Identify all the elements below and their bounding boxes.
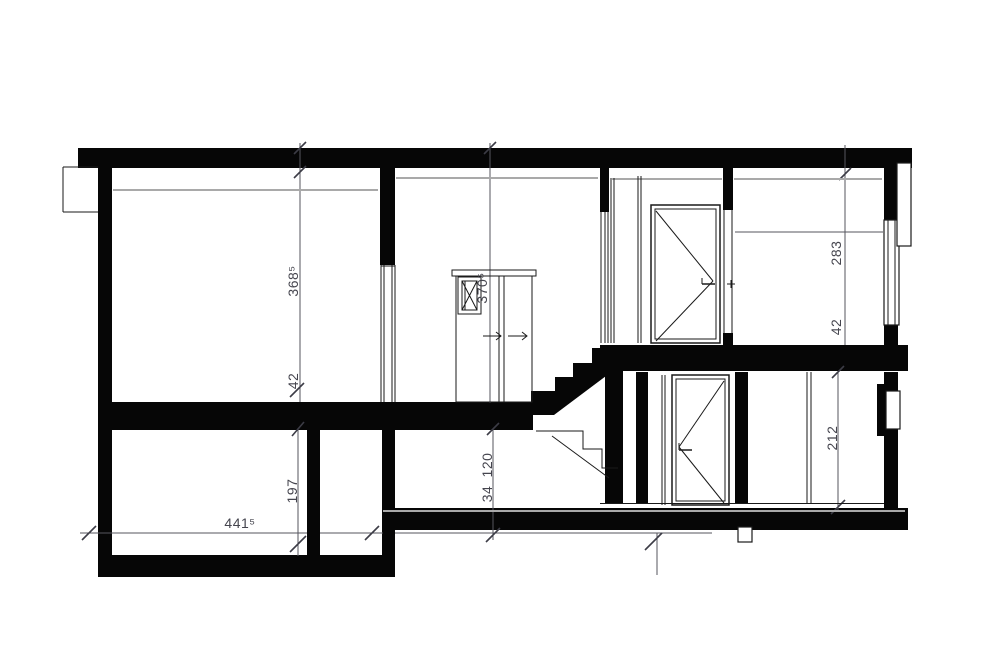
- floorplan-sheet: 368⁵ 42 370⁵ 283 42 212 120 34 197 441⁵: [0, 0, 1005, 669]
- dim-crawl-slab: 34: [479, 486, 495, 503]
- dim-upper-right-slab: 42: [828, 319, 844, 336]
- dim-lower-right-room-height: 212: [824, 426, 840, 451]
- dim-upper-left-room-height: 368⁵: [285, 265, 301, 296]
- lower-right-door: [662, 375, 729, 505]
- dim-basement-room-height: 197: [284, 479, 300, 504]
- slab-detail-marker: [738, 527, 752, 542]
- dim-upper-left-slab: 42: [285, 373, 301, 390]
- exterior-ground-notch: [63, 167, 98, 212]
- upper-right-door: [651, 205, 720, 343]
- exterior-shutter-box: [897, 163, 911, 246]
- slide-arrow-right-icon: [508, 332, 527, 340]
- dim-basement-width: 441⁵: [224, 515, 255, 531]
- lower-right-wall-lines: [807, 372, 811, 503]
- slide-arrow-left-icon: [483, 332, 501, 340]
- upper-wall-opening-lines: [724, 210, 735, 333]
- staircase-upper-flight: [531, 348, 610, 415]
- dim-stair-hall-height: 370⁵: [474, 272, 490, 303]
- floor-slabs: [98, 345, 908, 577]
- section-drawing: 368⁵ 42 370⁵ 283 42 212 120 34 197 441⁵: [0, 0, 1005, 669]
- dim-upper-right-room-height: 283: [828, 241, 844, 266]
- ceiling-lines: [113, 178, 905, 511]
- wardrobe: [452, 270, 536, 402]
- roof-slab: [78, 148, 912, 168]
- lower-right-window: [886, 391, 900, 429]
- door-opening-left-hall: [381, 265, 395, 402]
- dim-crawl-space-height: 120: [479, 453, 495, 478]
